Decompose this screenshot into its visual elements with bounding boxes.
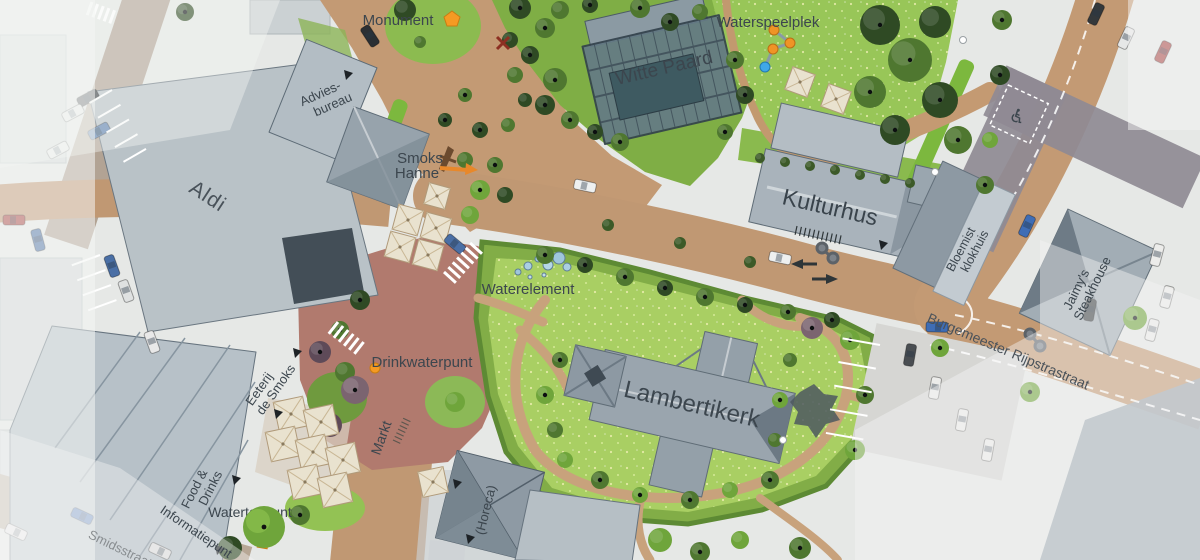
tree-icon [919, 6, 951, 38]
tree-icon [780, 304, 796, 320]
tree-icon [341, 376, 369, 404]
tree-icon [990, 65, 1010, 85]
tree-icon [507, 67, 523, 83]
tree-icon [982, 132, 998, 148]
tree-icon [414, 36, 426, 48]
tree-icon [547, 422, 563, 438]
tree-icon [992, 10, 1012, 30]
tree-icon [552, 352, 568, 368]
tree-icon [518, 93, 532, 107]
tree-icon [931, 339, 949, 357]
tree-icon [722, 482, 738, 498]
tree-icon [501, 118, 515, 132]
tree-icon [944, 126, 972, 154]
tree-icon [855, 170, 865, 180]
tree-icon [755, 153, 765, 163]
label-monument: Monument [363, 12, 435, 29]
tree-icon [661, 13, 679, 31]
tree-icon [692, 4, 708, 20]
map-canvas: ♿ [0, 0, 1200, 560]
tree-icon [854, 76, 886, 108]
tree-icon [805, 161, 815, 171]
tree-icon [616, 268, 634, 286]
tree-icon [922, 82, 958, 118]
tree-icon [824, 312, 840, 328]
tree-icon [731, 531, 749, 549]
tree-icon [696, 288, 714, 306]
tree-icon [681, 491, 699, 509]
tree-icon [726, 51, 744, 69]
tree-icon [350, 290, 370, 310]
tree-icon [789, 537, 811, 559]
tree-icon [736, 86, 754, 104]
label-waterelement: Waterelement [482, 281, 576, 298]
tree-icon [880, 115, 910, 145]
tree-icon [445, 392, 465, 412]
tree-icon [577, 257, 593, 273]
tree-icon [780, 157, 790, 167]
tree-icon [521, 46, 539, 64]
tree-icon [761, 471, 779, 489]
tree-icon [243, 506, 285, 548]
tree-icon [458, 88, 472, 102]
tree-icon [309, 341, 331, 363]
tree-icon [860, 5, 900, 45]
tree-icon [783, 353, 797, 367]
tree-icon [290, 505, 310, 525]
tree-icon [830, 165, 840, 175]
tree-icon [561, 111, 579, 129]
tree-icon [472, 122, 488, 138]
tree-icon [536, 246, 554, 264]
tree-icon [976, 176, 994, 194]
tree-icon [772, 392, 788, 408]
label-waterspeelplek: Waterspeelplek [717, 14, 820, 31]
tree-icon [717, 124, 733, 140]
label-drinkwaterpunt: Drinkwaterpunt [372, 354, 474, 371]
tree-icon [648, 528, 672, 552]
tree-icon [632, 487, 648, 503]
tree-icon [587, 124, 603, 140]
tree-icon [657, 280, 673, 296]
parasol-icon [418, 467, 449, 498]
tree-icon [487, 157, 503, 173]
tree-icon [880, 174, 890, 184]
tree-icon [557, 452, 573, 468]
tree-icon [888, 38, 932, 82]
tree-icon [551, 1, 569, 19]
tree-icon [535, 18, 555, 38]
tree-icon [470, 180, 490, 200]
tree-icon [536, 386, 554, 404]
tree-icon [905, 178, 915, 188]
tree-icon [674, 237, 686, 249]
tree-icon [543, 68, 567, 92]
tree-icon [801, 317, 823, 339]
tree-icon [744, 256, 756, 268]
tree-icon [856, 386, 874, 404]
tree-icon [737, 297, 753, 313]
tree-icon [535, 95, 555, 115]
masterplan-map: ♿ [0, 0, 1200, 560]
label-smoks-line2: Hanne [395, 165, 439, 182]
parasol-icon [317, 472, 353, 508]
tree-icon [457, 152, 473, 168]
tree-icon [591, 471, 609, 489]
tree-icon [438, 113, 452, 127]
tree-icon [497, 187, 513, 203]
tree-icon [611, 133, 629, 151]
tree-icon [461, 206, 479, 224]
tree-icon [602, 219, 614, 231]
